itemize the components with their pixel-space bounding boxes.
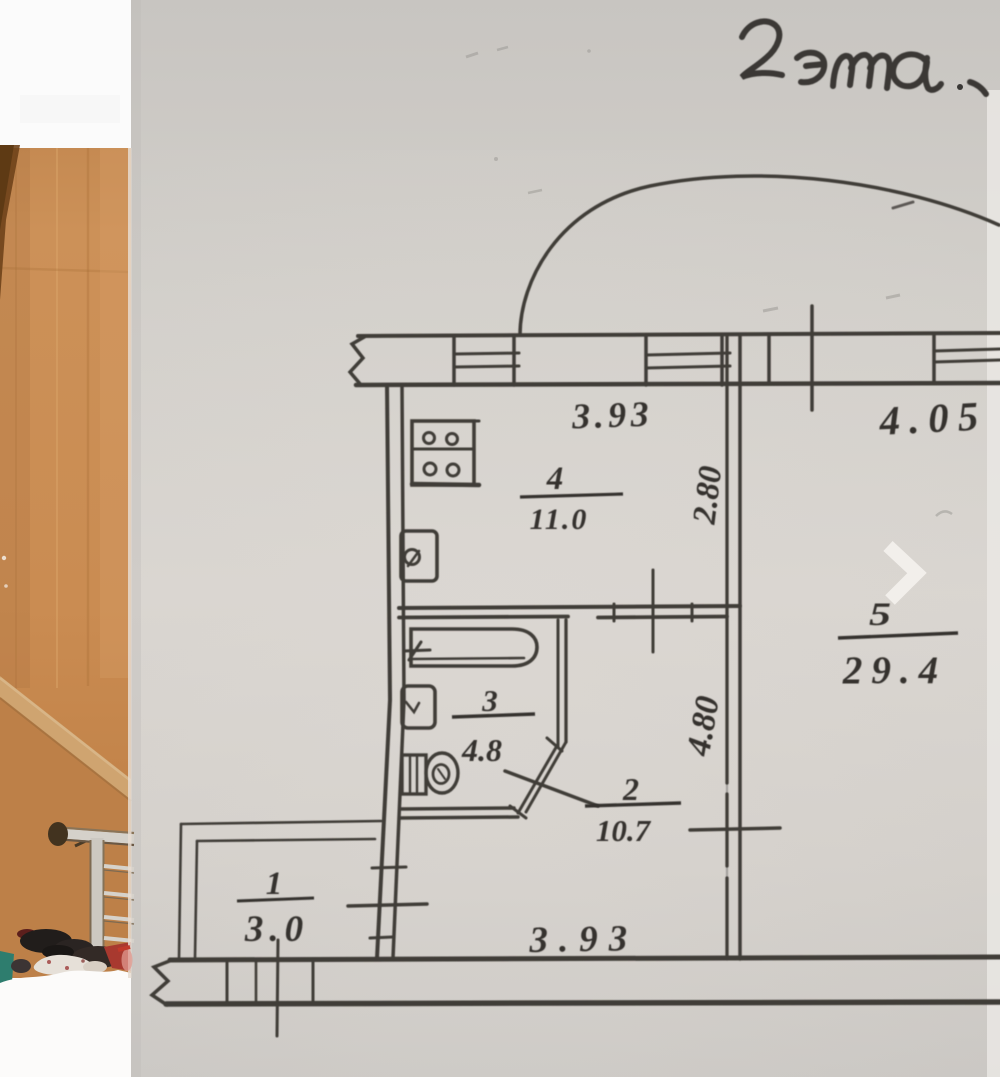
svg-text:5: 5 [869,597,891,633]
svg-text:2: 2 [622,771,639,807]
svg-text:1: 1 [266,866,283,902]
svg-text:2.80: 2.80 [686,464,729,527]
svg-text:4.8: 4.8 [461,732,502,768]
svg-text:4: 4 [546,461,564,497]
svg-text:10.7: 10.7 [596,813,652,848]
svg-text:4.05: 4.05 [877,392,988,444]
svg-text:29.4: 29.4 [842,649,947,692]
svg-text:3.93: 3.93 [570,394,653,437]
svg-text:3.0: 3.0 [244,909,309,950]
svg-text:3.93: 3.93 [528,918,638,961]
svg-text:11.0: 11.0 [530,503,589,536]
svg-text:3: 3 [481,683,498,718]
